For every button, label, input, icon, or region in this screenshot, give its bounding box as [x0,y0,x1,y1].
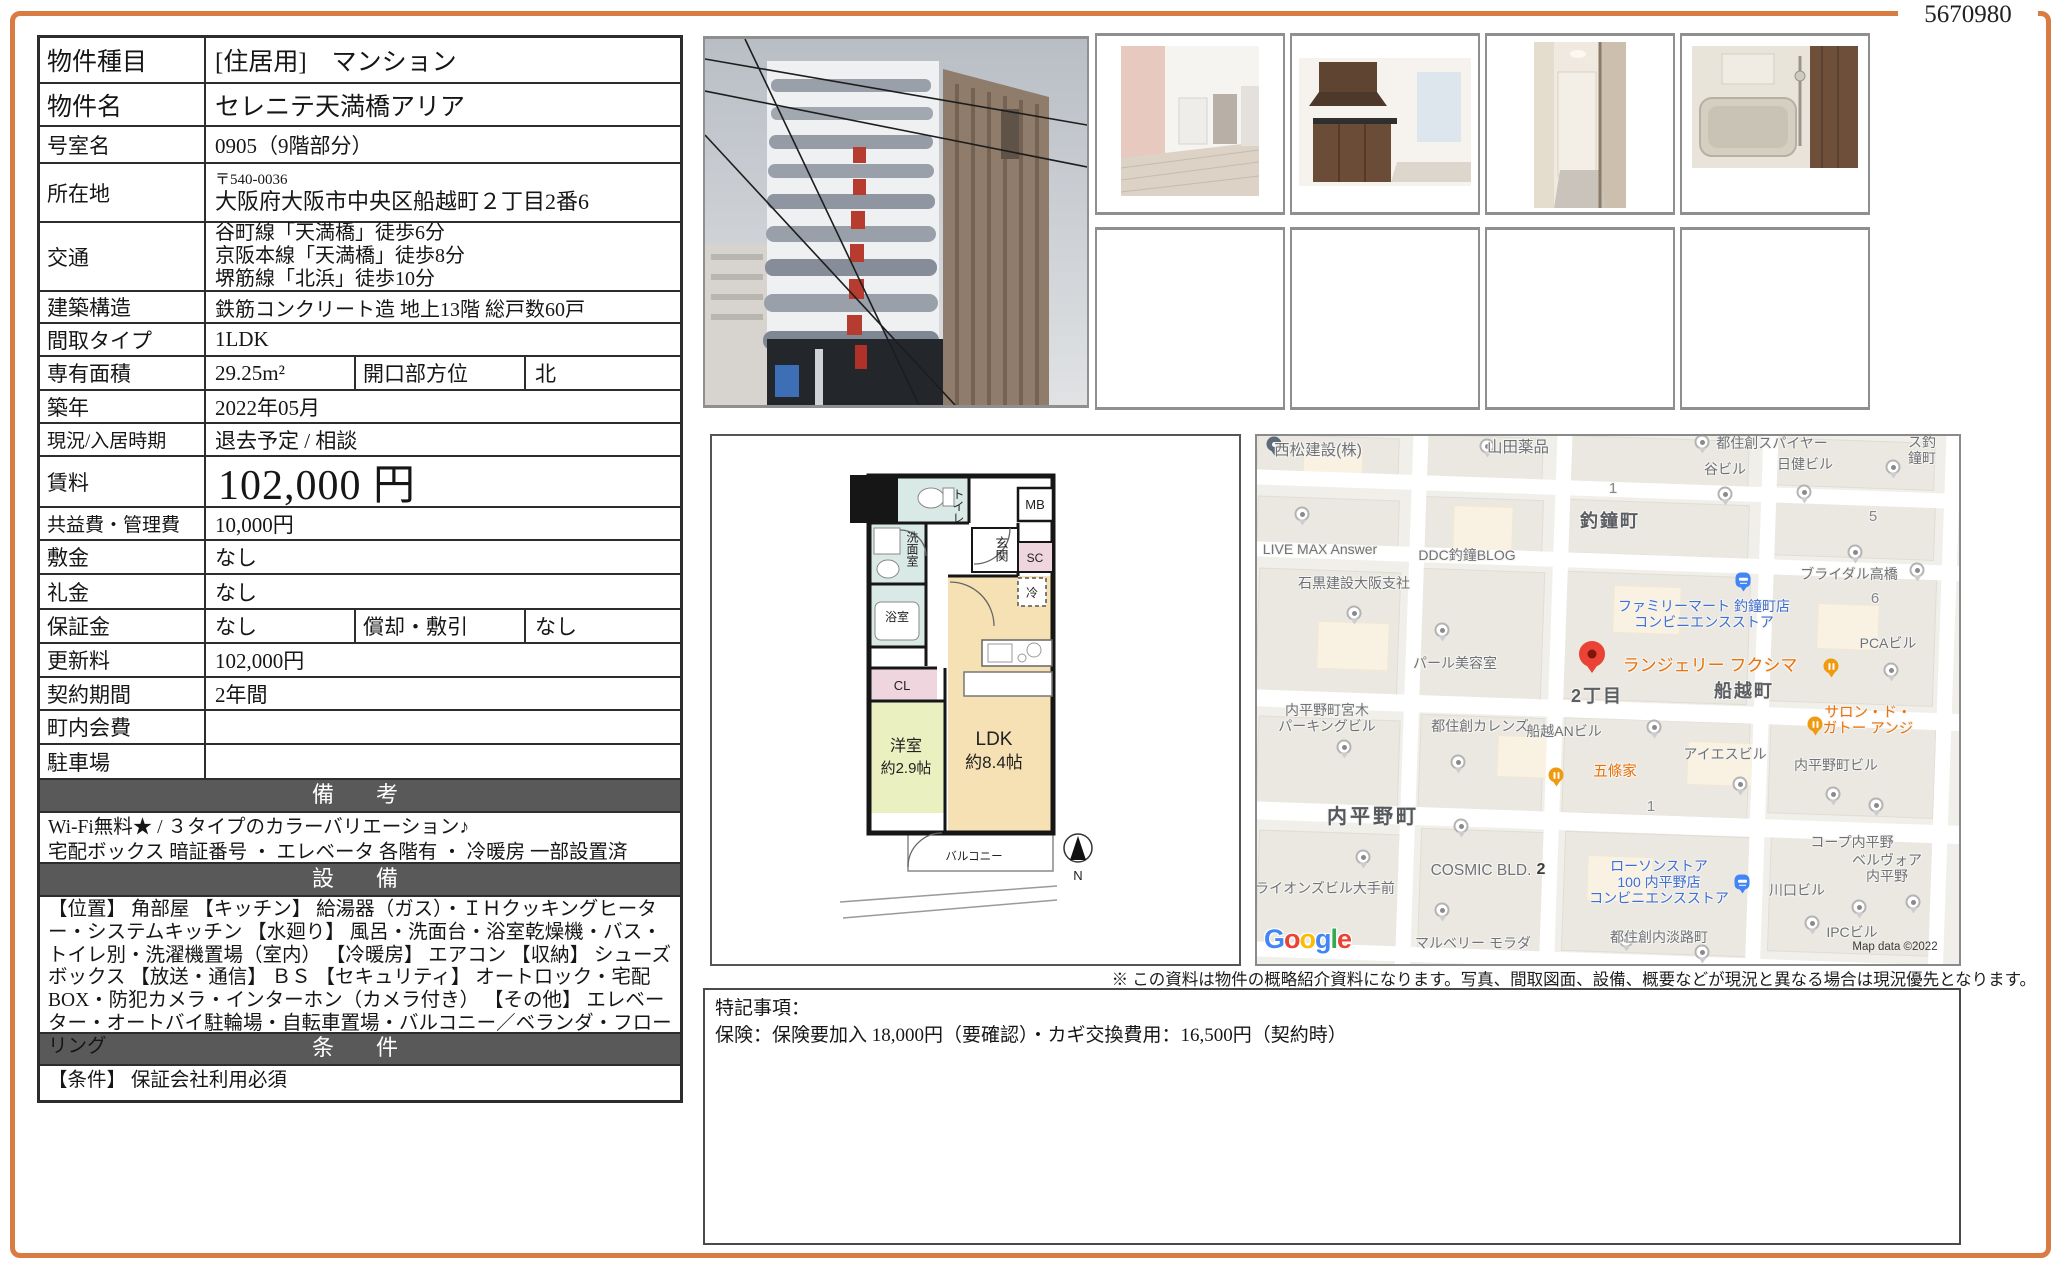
property-detail-table: 物件種目[住居用] マンション 物件名セレニテ天満橋アリア 号室名0905（9階… [37,35,683,1103]
map-label: 川口ビル [1769,882,1825,898]
table-row: 町内会費 [40,709,680,743]
map-label: 船越町 [1714,683,1774,699]
map-pin-icon [1852,900,1867,915]
map-pin-icon [1886,460,1901,475]
row-label: 所在地 [40,164,206,221]
row-label: 間取タイプ [40,324,206,355]
room-size-western: 約2.9帖 [881,760,932,777]
row-label: 建築構造 [40,292,206,322]
compass-label: N [1073,868,1082,883]
map-attribution: Map data ©2022 [1852,939,1937,955]
row-value: なし [206,610,356,642]
map-pin-icon [1869,798,1884,813]
compass-north-icon [1064,834,1092,862]
special-notes-title: 特記事項： [715,995,1949,1022]
table-row: 保証金なし償却・敷引なし [40,608,680,642]
row-value-2: なし [526,610,680,642]
table-row: 契約期間2年間 [40,676,680,709]
room-label-entrance: 玄関 [994,536,1009,563]
map-label: LIVE MAX Answer [1263,541,1377,557]
room-label-balcony: バルコニー [945,850,1002,863]
row-value-2: 北 [526,357,680,389]
map-pin-icon [1826,787,1841,802]
map-pin-icon [1695,435,1710,450]
room-label-ldk: LDK [976,729,1013,750]
map-label: サロン・ド・ ガトー アンジ [1823,705,1913,737]
row-label: 物件名 [40,84,206,125]
row-label: 交通 [40,223,206,290]
map-label: 日健ビル [1777,456,1833,472]
equipment-text: 【位置】 角部屋 【キッチン】 給湯器（ガス）・ＩＨクッキングヒーター・システム… [40,895,680,1032]
map-pin-icon [1797,485,1812,500]
property-flyer-page: 5670980 物件種目[住居用] マンション 物件名セレニテ天満橋アリア 号室… [0,0,2056,1265]
map-label: 都住創内淡路町 [1610,929,1708,945]
map-label: DDC釣鐘BLOG [1418,547,1515,563]
map-label: IPCビル [1826,924,1877,940]
room-label-cl: CL [894,678,911,693]
room-label-western: 洋室 [890,737,922,755]
room-label-fridge: 冷 [1026,586,1038,600]
row-value: 鉄筋コンクリート造 地上13階 総戸数60戸 [206,292,680,322]
photo-hallway [1485,33,1675,215]
map-label: 西松建設(株) [1274,443,1362,459]
row-label: 物件種目 [40,38,206,82]
restaurant-icon [1808,717,1823,732]
conditions-text: 【条件】 保証会社利用必須 [40,1064,680,1100]
location-map: 西松建設(株) 山田薬品 都住創スパイヤー ミネス釣鐘町 谷ビル 日健ビル 1 … [1255,434,1961,966]
equipment-header: 設 備 [40,862,680,895]
map-label: ベルヴォア内平野 [1851,852,1923,884]
table-row: 間取タイプ1LDK [40,322,680,355]
convenience-store-icon [1736,573,1751,588]
map-label: パール美容室 [1413,655,1497,671]
map-pin-icon [1295,507,1310,522]
rent-value: 102,000 円 [206,457,680,506]
row-label: 専有面積 [40,357,206,389]
destination-pin-icon [1579,641,1605,667]
row-label-2: 償却・敷引 [356,610,526,642]
map-label: 山田薬品 [1487,440,1549,456]
row-value: 102,000円 [206,644,680,676]
photo-placeholder-2 [1290,227,1480,410]
table-row: 礼金なし [40,573,680,608]
map-label: COSMIC BLD. [1431,863,1532,879]
photo-building-exterior [703,36,1089,408]
map-label: 釣鐘町 [1580,513,1640,529]
remarks-text: Wi-Fi無料★ / ３タイプのカラーバリエーション♪ 宅配ボックス 暗証番号 … [40,811,680,862]
disclaimer-text: ※ この資料は物件の概略紹介資料になります。写真、間取図面、設備、概要などが現況… [1060,966,2036,990]
row-label: 号室名 [40,127,206,162]
photo-interior-room [1095,33,1285,215]
map-pin-icon [1647,720,1662,735]
table-row: 共益費・管理費10,000円 [40,506,680,539]
map-pin-icon [1884,663,1899,678]
map-label: 内平野町ビル [1794,757,1878,773]
document-number: 5670980 [1898,0,2038,32]
map-label: アイエスビル [1683,746,1766,762]
table-row: 更新料102,000円 [40,642,680,676]
table-row: 物件種目[住居用] マンション [40,38,680,82]
convenience-store-icon [1735,875,1750,890]
table-row: 所在地〒540-0036大阪府大阪市中央区船越町２丁目2番6 [40,162,680,221]
building-exterior-image [705,39,1087,405]
map-label: ライオンズビル大手前 [1255,880,1395,896]
row-value: 1LDK [206,324,680,355]
row-label: 駐車場 [40,745,206,778]
map-label: ブライダル高橋 [1800,566,1897,582]
map-label: ファミリーマート 釣鐘町店 コンビニエンスストア [1618,598,1790,630]
row-label: 礼金 [40,575,206,608]
row-value: [住居用] マンション [206,38,680,82]
map-label: マルベリー モラダ [1415,935,1531,951]
row-value: 0905（9階部分） [206,127,680,162]
google-logo: Google [1264,924,1351,955]
row-label: 町内会費 [40,711,206,743]
map-label: ミネス釣鐘町 [1904,434,1941,466]
hallway-image [1534,42,1626,208]
floor-plan: トイレ MB 洗面室 玄関 SC 冷 浴室 CL LDK 約8.4帖 洋室 約2… [710,434,1241,966]
photo-placeholder-3 [1485,227,1675,410]
bathroom-image [1692,46,1858,168]
row-value: 10,000円 [206,508,680,539]
room-label-sc: SC [1027,551,1044,565]
row-value: 2022年05月 [206,391,680,422]
row-label: 賃料 [40,457,206,506]
row-value [206,745,680,778]
map-label: 都住創カレンズ [1431,718,1529,734]
map-pin-icon [1435,623,1450,638]
row-value [206,711,680,743]
map-pin-icon [1337,740,1352,755]
row-value: 2年間 [206,678,680,709]
map-pin-icon [1733,777,1748,792]
map-pin-icon [1848,545,1863,560]
address: 大阪府大阪市中央区船越町２丁目2番6 [215,189,589,215]
row-value: なし [206,575,680,608]
special-notes-body: 保険：保険要加入 18,000円（要確認）・カギ交換費用：16,500円（契約時… [715,1022,1949,1049]
photo-bathroom [1680,33,1870,215]
table-row: 築年2022年05月 [40,389,680,422]
floor-plan-drawing: トイレ MB 洗面室 玄関 SC 冷 浴室 CL LDK 約8.4帖 洋室 約2… [712,436,1239,964]
map-label: 都住創スパイヤー [1716,435,1828,451]
map-label: 2 [1537,862,1546,878]
room-label-toilet: トイレ [951,488,965,524]
photo-placeholder-4 [1680,227,1870,410]
table-row: 賃料102,000 円 [40,455,680,506]
row-label: 保証金 [40,610,206,642]
map-pin-icon [1906,895,1921,910]
map-label: 1 [1609,481,1617,497]
map-pin-icon [1454,819,1469,834]
map-label: ランジェリー フクシマ [1623,658,1798,674]
map-label: 五條家 [1593,764,1637,780]
map-label: ローソンストア 100 内平野店 コンビニエンスストア [1589,858,1729,906]
map-label: 2丁目 [1571,688,1623,704]
room-label-bath: 浴室 [885,609,909,624]
table-row: 専有面積29.25m²開口部方位北 [40,355,680,389]
room-label-mb: MB [1025,497,1045,512]
row-label: 共益費・管理費 [40,508,206,539]
map-pin-icon [1356,850,1371,865]
postal-code: 〒540-0036 [215,172,589,189]
table-row: 物件名セレニテ天満橋アリア [40,82,680,125]
map-pin-icon [1451,755,1466,770]
row-label: 更新料 [40,644,206,676]
remarks-header: 備 考 [40,778,680,811]
conditions-header: 条 件 [40,1032,680,1064]
row-value: セレニテ天満橋アリア [206,84,680,125]
row-value: なし [206,541,680,573]
table-row: 号室名0905（9階部分） [40,125,680,162]
photo-placeholder-1 [1095,227,1285,410]
row-label: 現況/入居時期 [40,424,206,455]
map-pin-icon [1695,945,1710,960]
map-label: コープ内平野 [1810,834,1893,850]
map-label: 6 [1871,591,1879,607]
special-notes-box: 特記事項： 保険：保険要加入 18,000円（要確認）・カギ交換費用：16,50… [703,988,1961,1245]
map-pin-icon [1347,606,1362,621]
map-label: 1 [1647,799,1655,815]
table-row: 交通谷町線「天満橋」徒歩6分 京阪本線「天満橋」徒歩8分 堺筋線「北浜」徒歩10… [40,221,680,290]
row-label: 契約期間 [40,678,206,709]
room-size-ldk: 約8.4帖 [965,753,1023,772]
row-value: 29.25m² [206,357,356,389]
map-label: 谷ビル [1704,461,1746,477]
table-row: 建築構造鉄筋コンクリート造 地上13階 総戸数60戸 [40,290,680,322]
map-label: PCAビル [1860,635,1917,651]
map-block [1417,568,1546,704]
map-building [1452,505,1513,551]
kitchen-image [1299,58,1471,186]
restaurant-icon [1824,659,1839,674]
map-pin-icon [1435,903,1450,918]
room-label-washroom: 洗面室 [905,531,919,567]
map-pin-icon [1805,916,1820,931]
map-label: 船越ANビル [1526,723,1601,739]
map-label: 内平野町 [1327,809,1419,825]
map-label: 内平野町宮木 パーキングビル [1278,702,1376,734]
interior-room-image [1121,46,1259,196]
row-label-2: 開口部方位 [356,357,526,389]
photo-kitchen [1290,33,1480,215]
map-pin-icon [1718,487,1733,502]
row-label: 築年 [40,391,206,422]
row-label: 敷金 [40,541,206,573]
map-label: 石黒建設大阪支社 [1298,575,1410,591]
table-row: 敷金なし [40,539,680,573]
restaurant-icon [1549,768,1564,783]
table-row: 駐車場 [40,743,680,778]
map-pin-icon [1910,563,1925,578]
map-label: 5 [1869,509,1877,525]
transit-lines: 谷町線「天満橋」徒歩6分 京阪本線「天満橋」徒歩8分 堺筋線「北浜」徒歩10分 [206,223,680,290]
